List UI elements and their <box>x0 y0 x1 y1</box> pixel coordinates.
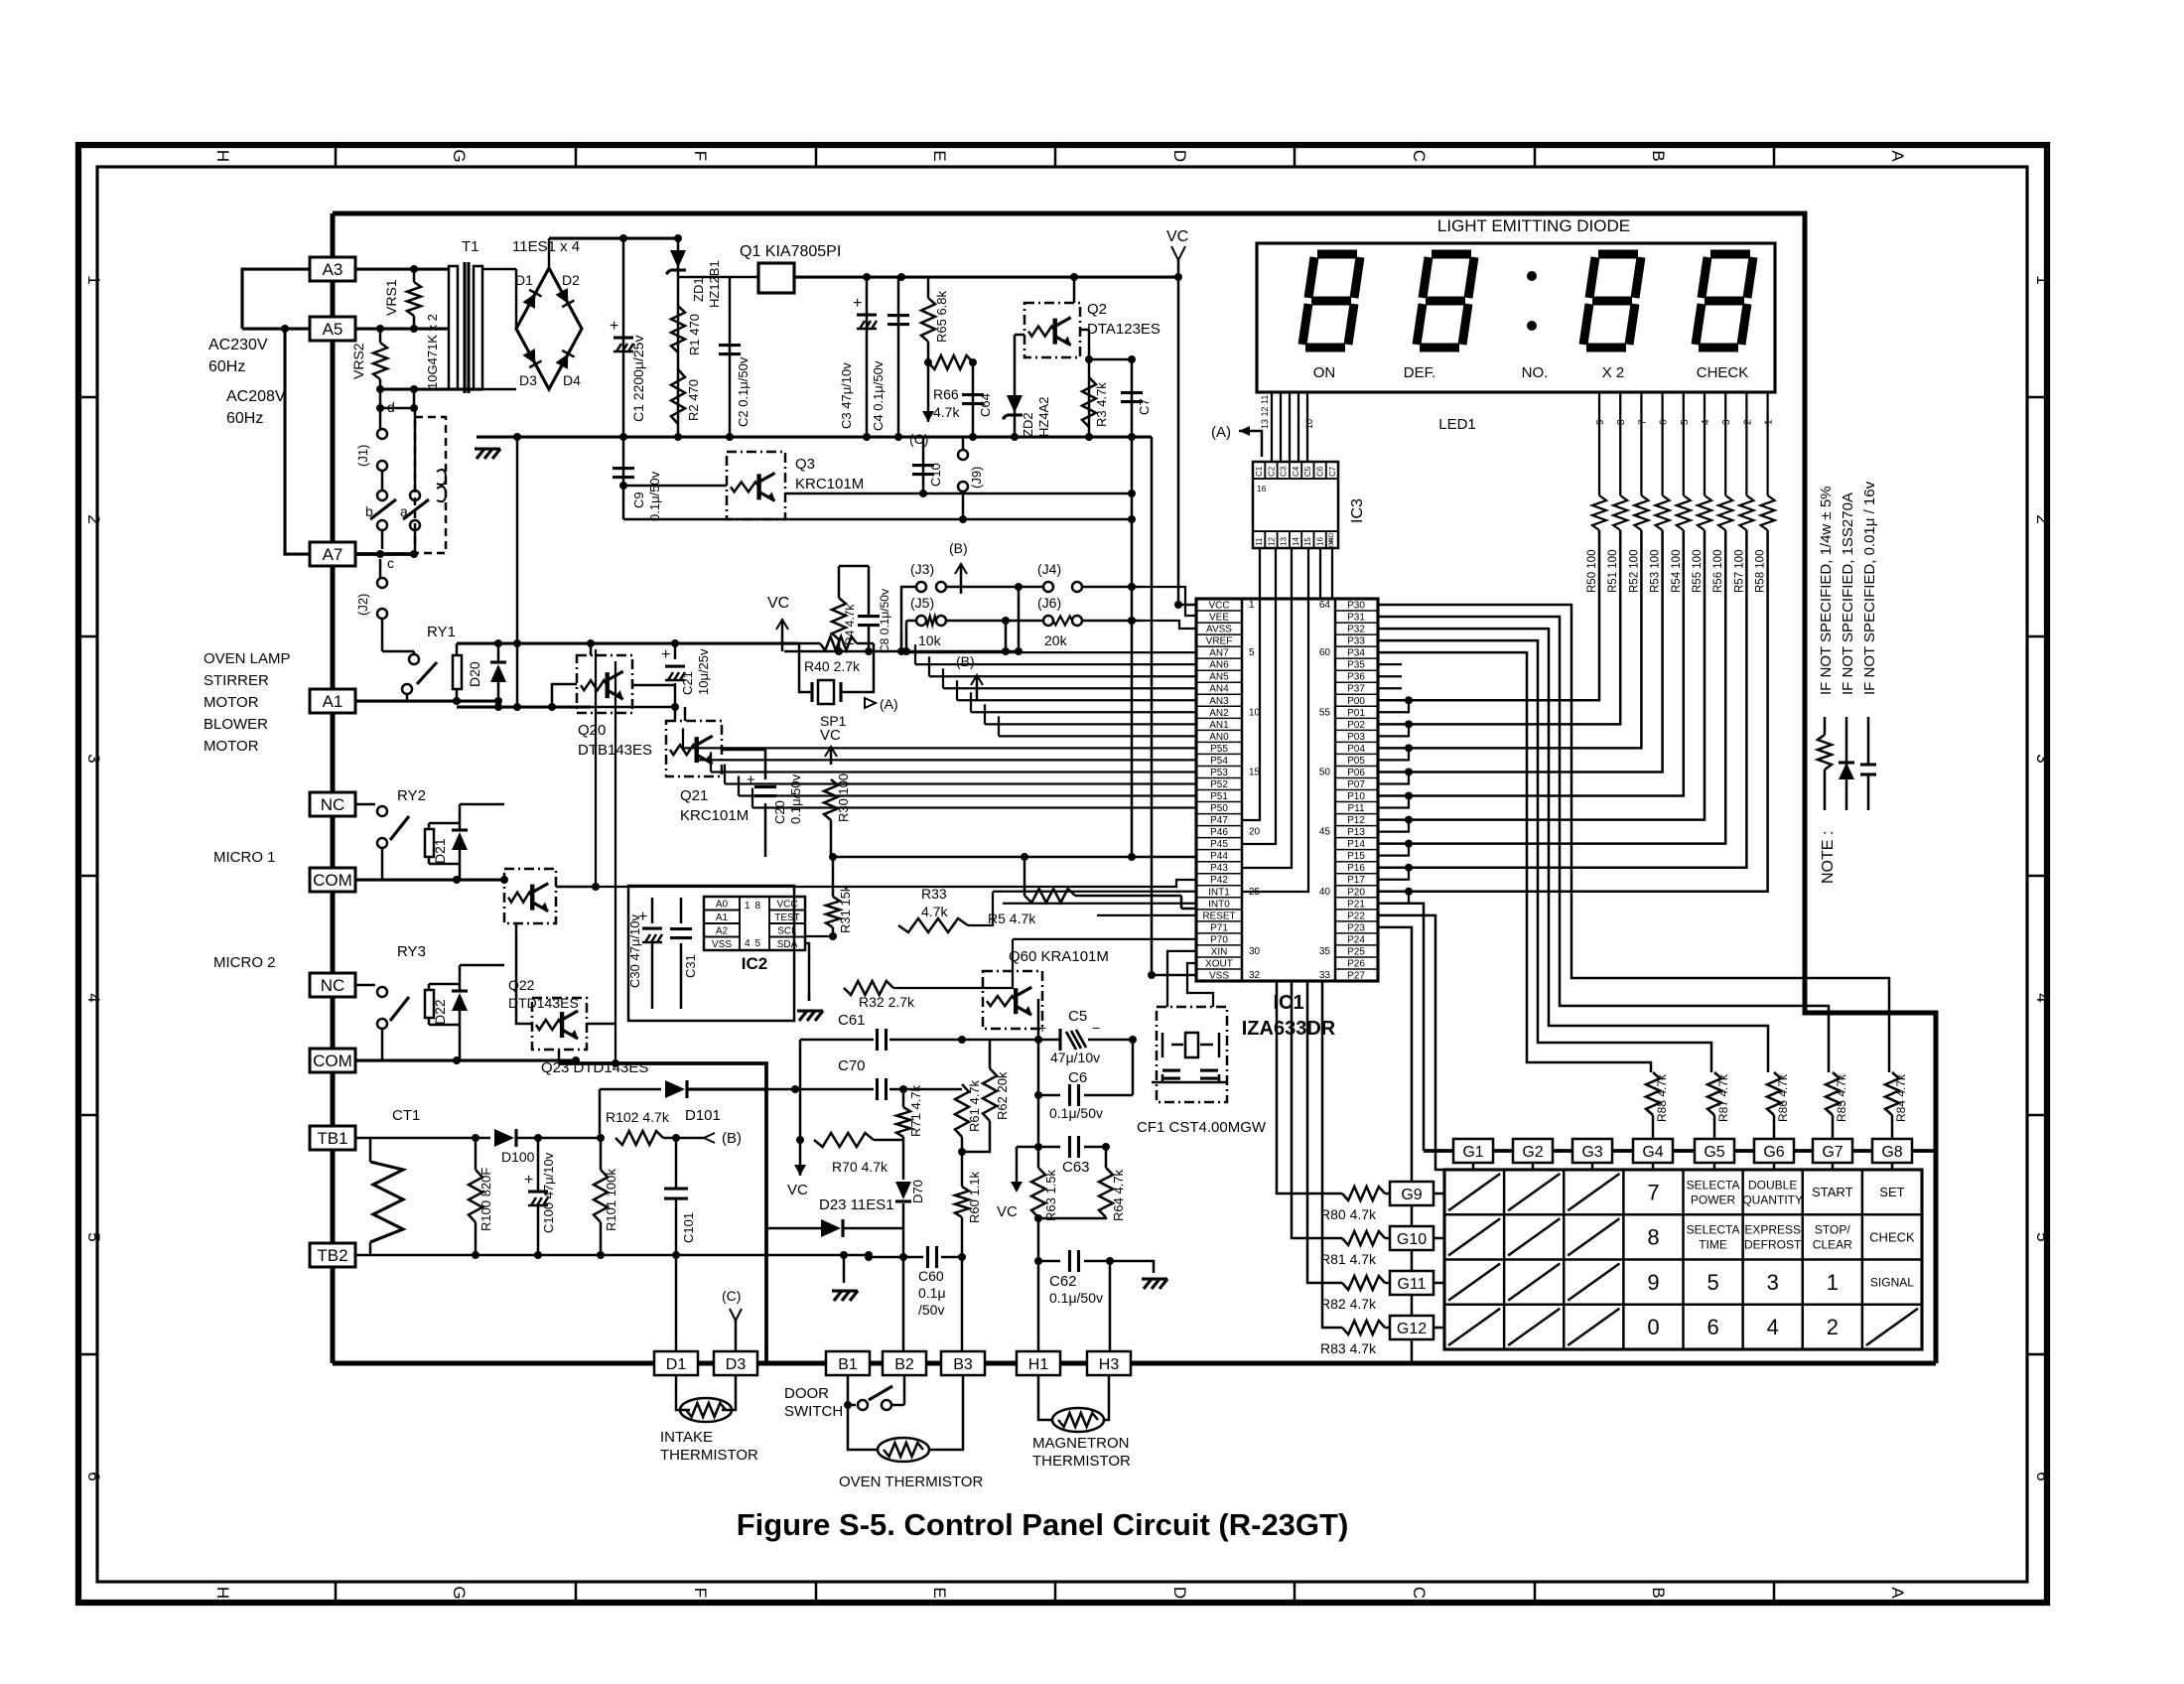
svg-text:AN3: AN3 <box>1209 696 1229 707</box>
svg-text:R100 820F: R100 820F <box>478 1168 493 1231</box>
svg-text:P04: P04 <box>1347 744 1365 755</box>
svg-text:D22: D22 <box>432 999 448 1025</box>
svg-text:+: + <box>661 646 670 663</box>
svg-text:R53 100: R53 100 <box>1650 550 1662 593</box>
svg-text:20: 20 <box>1249 827 1261 838</box>
svg-text:A5: A5 <box>323 320 343 339</box>
svg-text:P44: P44 <box>1210 851 1228 862</box>
svg-text:7: 7 <box>1637 419 1648 425</box>
svg-text:RY3: RY3 <box>397 943 426 960</box>
svg-text:IF NOT SPECIFIED, 1SS270A: IF NOT SPECIFIED, 1SS270A <box>1840 492 1856 695</box>
svg-text:A1: A1 <box>716 912 729 923</box>
svg-text:D: D <box>1170 1587 1189 1599</box>
svg-text:D4: D4 <box>563 372 581 388</box>
svg-text:A1: A1 <box>323 692 343 711</box>
svg-text:G12: G12 <box>1397 1321 1427 1337</box>
svg-text:C6: C6 <box>1316 466 1325 477</box>
svg-text:G: G <box>450 1586 469 1599</box>
svg-text:TIME: TIME <box>1699 1238 1727 1252</box>
svg-text:SELECTA: SELECTA <box>1687 1178 1740 1192</box>
svg-text:/50v: /50v <box>918 1302 944 1318</box>
svg-text:G2: G2 <box>1522 1144 1543 1161</box>
svg-text:B2: B2 <box>894 1356 914 1373</box>
svg-text:P34: P34 <box>1347 648 1365 659</box>
svg-text:COM: COM <box>313 1052 352 1070</box>
svg-text:MAGNETRON: MAGNETRON <box>1032 1435 1130 1452</box>
svg-text:D70: D70 <box>910 1180 925 1203</box>
svg-text:R87 4.7k: R87 4.7k <box>1716 1073 1730 1122</box>
svg-text:P17: P17 <box>1347 875 1365 886</box>
svg-text:Q21: Q21 <box>680 787 708 804</box>
svg-text:F: F <box>691 151 710 161</box>
svg-text:60Hz: 60Hz <box>226 410 263 427</box>
svg-text:G3: G3 <box>1581 1144 1602 1161</box>
svg-text:15: 15 <box>1303 537 1312 546</box>
svg-text:R57 100: R57 100 <box>1733 550 1745 593</box>
svg-text:B3: B3 <box>953 1356 973 1373</box>
svg-text:C30 47μ/10v: C30 47μ/10v <box>627 914 642 988</box>
svg-text:RESET: RESET <box>1202 911 1235 921</box>
svg-text:Q22: Q22 <box>508 977 535 993</box>
svg-text:R56 100: R56 100 <box>1712 550 1724 593</box>
svg-text:0.1μ/50v: 0.1μ/50v <box>1049 1105 1103 1121</box>
svg-text:LED1: LED1 <box>1438 416 1476 433</box>
svg-text:P14: P14 <box>1347 839 1365 850</box>
svg-text:THERMISTOR: THERMISTOR <box>660 1447 758 1464</box>
svg-text:+: + <box>853 295 862 312</box>
svg-text:P51: P51 <box>1210 791 1228 802</box>
svg-text:55: 55 <box>1319 707 1331 718</box>
svg-text:(J3): (J3) <box>910 561 934 577</box>
svg-text:SDA: SDA <box>777 939 798 950</box>
svg-text:4: 4 <box>2033 993 2052 1002</box>
svg-text:50: 50 <box>1319 767 1331 777</box>
svg-text:XOUT: XOUT <box>1205 958 1233 969</box>
svg-text:33: 33 <box>1319 970 1331 981</box>
svg-text:R80 4.7k: R80 4.7k <box>1320 1206 1377 1222</box>
svg-text:1: 1 <box>745 901 751 912</box>
svg-text:R65 6.8k: R65 6.8k <box>934 290 949 343</box>
svg-text:SWITCH: SWITCH <box>784 1403 843 1420</box>
svg-text:(J2): (J2) <box>355 594 370 616</box>
svg-text:G8: G8 <box>1881 1144 1902 1161</box>
svg-text:OVEN LAMP: OVEN LAMP <box>204 650 291 667</box>
svg-text:6: 6 <box>1706 1315 1718 1339</box>
svg-text:CHECK: CHECK <box>1697 364 1749 381</box>
svg-text:CLEAR: CLEAR <box>1813 1238 1852 1252</box>
svg-text:R30 100: R30 100 <box>836 773 851 822</box>
svg-text:+: + <box>610 318 618 335</box>
svg-text:+: + <box>1038 1020 1046 1036</box>
svg-text:5: 5 <box>1249 647 1255 658</box>
svg-text:9: 9 <box>1647 1270 1659 1295</box>
svg-text:(J6): (J6) <box>1037 595 1061 611</box>
svg-text:H1: H1 <box>1028 1356 1049 1373</box>
svg-text:VC: VC <box>1166 228 1188 245</box>
svg-text:TEST: TEST <box>774 912 800 923</box>
svg-text:4: 4 <box>1767 1315 1779 1339</box>
svg-text:2: 2 <box>84 514 103 523</box>
svg-text:11: 11 <box>1255 537 1264 546</box>
svg-text:AN2: AN2 <box>1209 708 1229 719</box>
svg-text:G10: G10 <box>1397 1231 1427 1248</box>
svg-text:B: B <box>1649 1587 1668 1598</box>
svg-text:P00: P00 <box>1347 696 1365 707</box>
svg-text:STIRRER: STIRRER <box>204 672 269 689</box>
svg-text:P05: P05 <box>1347 756 1365 767</box>
svg-text:35: 35 <box>1319 946 1331 957</box>
svg-text:(C): (C) <box>909 431 928 447</box>
svg-text:KRC101M: KRC101M <box>680 807 749 824</box>
svg-text:15: 15 <box>1249 767 1261 777</box>
svg-text:4: 4 <box>745 938 751 949</box>
svg-text:C3: C3 <box>1280 466 1289 477</box>
svg-text:(B): (B) <box>722 1130 742 1147</box>
svg-text:C100 47μ/10v: C100 47μ/10v <box>541 1152 556 1233</box>
svg-text:C6: C6 <box>1068 1069 1087 1086</box>
svg-text:6: 6 <box>1659 419 1670 425</box>
svg-text:G11: G11 <box>1397 1276 1426 1293</box>
svg-text:C: C <box>1410 150 1429 162</box>
svg-text:DEFROST: DEFROST <box>1744 1238 1802 1252</box>
svg-text:RY2: RY2 <box>397 787 426 804</box>
svg-text:AN4: AN4 <box>1209 684 1229 695</box>
svg-text:14: 14 <box>1292 537 1300 546</box>
svg-text:4.7k: 4.7k <box>933 404 960 420</box>
svg-text:P26: P26 <box>1347 958 1365 969</box>
svg-text:R83 4.7k: R83 4.7k <box>1320 1340 1377 1356</box>
svg-text:P70: P70 <box>1210 934 1228 945</box>
svg-text:Q60 KRA101M: Q60 KRA101M <box>1009 948 1109 965</box>
svg-text:NO.: NO. <box>1522 364 1549 381</box>
svg-text:B: B <box>1649 150 1668 161</box>
svg-text:0.1μ/50v: 0.1μ/50v <box>647 471 662 521</box>
svg-text:P24: P24 <box>1347 934 1365 945</box>
svg-text:2: 2 <box>2033 514 2052 523</box>
svg-text:MOTOR: MOTOR <box>204 694 259 711</box>
svg-text:TB2: TB2 <box>317 1246 347 1265</box>
svg-text:C5: C5 <box>1303 466 1312 477</box>
svg-text:10μ/25v: 10μ/25v <box>696 648 711 695</box>
svg-text:R52 100: R52 100 <box>1628 550 1640 593</box>
svg-text:P33: P33 <box>1347 636 1365 647</box>
svg-text:1: 1 <box>84 275 103 284</box>
svg-text:R33: R33 <box>921 886 947 902</box>
svg-text:C: C <box>1410 1587 1429 1599</box>
svg-text:G7: G7 <box>1822 1144 1843 1161</box>
svg-text:C63: C63 <box>1062 1159 1090 1176</box>
svg-text:G4: G4 <box>1642 1144 1663 1161</box>
svg-text:XIN: XIN <box>1211 946 1228 957</box>
svg-text:P46: P46 <box>1210 827 1228 838</box>
svg-text:MICRO 2: MICRO 2 <box>213 954 276 971</box>
svg-text:64: 64 <box>1319 600 1331 611</box>
svg-text:5: 5 <box>1680 419 1691 425</box>
svg-text:−: − <box>1092 1020 1100 1036</box>
svg-text:DTA123ES: DTA123ES <box>1087 321 1160 338</box>
svg-text:4: 4 <box>84 993 103 1002</box>
svg-text:OVEN THERMISTOR: OVEN THERMISTOR <box>839 1473 983 1490</box>
svg-text:P36: P36 <box>1347 672 1365 683</box>
svg-text:R54 100: R54 100 <box>1671 550 1683 593</box>
svg-text:SIGNAL: SIGNAL <box>1870 1275 1914 1289</box>
svg-text:P42: P42 <box>1210 875 1228 886</box>
svg-text:7: 7 <box>1647 1180 1659 1204</box>
svg-text:5: 5 <box>2033 1232 2052 1241</box>
svg-text:P37: P37 <box>1347 684 1365 695</box>
svg-text:5: 5 <box>84 1232 103 1241</box>
svg-text:INTAKE: INTAKE <box>660 1429 713 1446</box>
svg-text:4: 4 <box>1701 419 1711 425</box>
svg-text:8: 8 <box>1616 419 1627 425</box>
svg-text:R82 4.7k: R82 4.7k <box>1320 1296 1377 1312</box>
svg-text:D21: D21 <box>432 838 448 864</box>
svg-text:R58 100: R58 100 <box>1755 550 1767 593</box>
svg-text:R86 4.7k: R86 4.7k <box>1776 1073 1790 1122</box>
svg-text:F: F <box>691 1588 710 1598</box>
svg-text:45: 45 <box>1319 827 1331 838</box>
svg-text:10: 10 <box>1249 707 1261 718</box>
svg-text:ON: ON <box>1313 364 1336 381</box>
svg-text:12: 12 <box>1267 537 1276 546</box>
svg-text:P30: P30 <box>1347 601 1365 612</box>
svg-text:ZD1: ZD1 <box>691 277 706 302</box>
svg-text:D3: D3 <box>726 1356 747 1373</box>
svg-text:A0: A0 <box>716 900 729 911</box>
svg-text:VRS2: VRS2 <box>350 343 366 379</box>
svg-text:10: 10 <box>1304 419 1314 429</box>
svg-text:R88 4.7k: R88 4.7k <box>1655 1073 1669 1122</box>
svg-text:G6: G6 <box>1763 1144 1784 1161</box>
svg-text:G: G <box>450 149 469 162</box>
svg-text:25: 25 <box>1249 887 1261 898</box>
svg-text:C2 0.1μ/50v: C2 0.1μ/50v <box>736 356 751 427</box>
svg-text:P54: P54 <box>1210 756 1228 767</box>
svg-text:R3 4.7k: R3 4.7k <box>1094 382 1109 427</box>
svg-text:32: 32 <box>1249 970 1261 981</box>
svg-text:c: c <box>387 555 394 571</box>
svg-text:SP1: SP1 <box>820 713 847 729</box>
svg-text:D23 11ES1: D23 11ES1 <box>819 1196 894 1213</box>
svg-text:R66: R66 <box>933 386 959 402</box>
svg-text:B1: B1 <box>838 1356 858 1373</box>
svg-text:P06: P06 <box>1347 768 1365 778</box>
svg-text:3: 3 <box>2033 754 2052 763</box>
svg-text:VC: VC <box>997 1203 1018 1220</box>
svg-text:DOUBLE: DOUBLE <box>1748 1178 1797 1192</box>
svg-text:10k: 10k <box>918 632 942 648</box>
svg-text:E: E <box>930 1587 949 1598</box>
svg-text:R84 4.7k: R84 4.7k <box>1894 1073 1908 1122</box>
svg-text:P12: P12 <box>1347 815 1365 826</box>
svg-text:INT1: INT1 <box>1208 887 1230 898</box>
svg-text:6: 6 <box>84 1472 103 1480</box>
svg-text:(C): (C) <box>722 1288 741 1304</box>
svg-text:CHECK: CHECK <box>1869 1229 1915 1244</box>
svg-text:P47: P47 <box>1210 815 1228 826</box>
svg-text:E: E <box>930 150 949 161</box>
svg-text:VCC: VCC <box>1208 601 1229 612</box>
svg-text:DEF.: DEF. <box>1404 364 1436 381</box>
svg-text:P50: P50 <box>1210 803 1228 814</box>
svg-text:H: H <box>213 150 232 162</box>
svg-text:13: 13 <box>1280 537 1289 546</box>
svg-text:EXPRESS: EXPRESS <box>1744 1223 1801 1237</box>
svg-text:P35: P35 <box>1347 660 1365 671</box>
svg-text:60Hz: 60Hz <box>208 358 245 375</box>
svg-text:IC2: IC2 <box>742 954 767 973</box>
svg-text:R101 100k: R101 100k <box>604 1169 618 1231</box>
svg-text:A2: A2 <box>716 926 729 937</box>
svg-text:8: 8 <box>754 901 760 912</box>
svg-text:0.1μ/50v: 0.1μ/50v <box>788 773 803 824</box>
svg-text:AN5: AN5 <box>1209 672 1229 683</box>
svg-text:6: 6 <box>2033 1472 2052 1480</box>
svg-text:P20: P20 <box>1347 887 1365 898</box>
svg-text:(B): (B) <box>949 540 968 556</box>
svg-text:3: 3 <box>1767 1270 1779 1295</box>
svg-text:R40 2.7k: R40 2.7k <box>804 658 861 674</box>
svg-text:P07: P07 <box>1347 779 1365 790</box>
svg-text:AN0: AN0 <box>1209 732 1229 743</box>
svg-text:TB1: TB1 <box>317 1129 347 1148</box>
svg-text:R50 100: R50 100 <box>1586 550 1598 593</box>
svg-text:5: 5 <box>754 938 760 949</box>
svg-text:AVSS: AVSS <box>1206 625 1232 635</box>
svg-text:47μ/10v: 47μ/10v <box>1050 1050 1100 1065</box>
svg-text:(J9): (J9) <box>969 467 984 489</box>
svg-text:+: + <box>747 772 755 788</box>
svg-text:C64: C64 <box>978 393 993 417</box>
svg-text:A: A <box>1888 150 1907 162</box>
svg-text:START: START <box>1812 1185 1852 1199</box>
svg-text:LIGHT EMITTING DIODE: LIGHT EMITTING DIODE <box>1437 216 1630 235</box>
svg-text:C3 47μ/10v: C3 47μ/10v <box>839 362 854 429</box>
svg-text:KRC101M: KRC101M <box>795 476 864 492</box>
svg-text:Q2: Q2 <box>1087 301 1107 318</box>
svg-text:P13: P13 <box>1347 827 1365 838</box>
svg-text:P25: P25 <box>1347 946 1365 957</box>
svg-text:R63 1.5k: R63 1.5k <box>1043 1169 1058 1221</box>
svg-text:D3: D3 <box>519 372 537 388</box>
svg-text:13 12 11: 13 12 11 <box>1260 395 1270 429</box>
svg-text:P71: P71 <box>1210 922 1228 933</box>
svg-text:DOOR: DOOR <box>784 1385 829 1402</box>
svg-text:C4: C4 <box>1292 466 1300 477</box>
svg-text:QUANTITY: QUANTITY <box>1742 1193 1803 1206</box>
svg-text:CT1: CT1 <box>392 1107 420 1124</box>
svg-text:Q20: Q20 <box>578 722 606 739</box>
svg-text:C21: C21 <box>680 671 695 695</box>
svg-text:A3: A3 <box>323 260 343 279</box>
svg-text:(B): (B) <box>956 653 975 669</box>
svg-text:INT0: INT0 <box>1208 899 1230 910</box>
svg-text:R61 4.7k: R61 4.7k <box>967 1079 982 1132</box>
svg-text:Q3: Q3 <box>795 456 815 473</box>
svg-text:COM: COM <box>313 871 352 890</box>
svg-text:R64 4.7k: R64 4.7k <box>1111 1169 1126 1221</box>
svg-text:R51 100: R51 100 <box>1607 550 1619 593</box>
svg-text:IC3: IC3 <box>1349 498 1366 523</box>
svg-text:+: + <box>524 1172 533 1189</box>
svg-text:X 2: X 2 <box>1602 364 1625 381</box>
svg-text:DTD143ES: DTD143ES <box>508 995 579 1011</box>
svg-text:C60: C60 <box>918 1268 944 1284</box>
svg-text:A: A <box>1888 1587 1907 1599</box>
svg-text:(A): (A) <box>880 696 898 712</box>
svg-text:T1: T1 <box>462 238 479 255</box>
svg-text:NC: NC <box>321 795 345 814</box>
svg-text:P27: P27 <box>1347 970 1365 981</box>
svg-text:P15: P15 <box>1347 851 1365 862</box>
svg-text:AN1: AN1 <box>1209 720 1229 731</box>
svg-text:AN7: AN7 <box>1209 648 1229 659</box>
svg-text:VCC: VCC <box>776 900 797 911</box>
svg-text:VC: VC <box>787 1182 808 1198</box>
svg-text:1: 1 <box>1827 1270 1839 1295</box>
svg-text:P03: P03 <box>1347 732 1365 743</box>
svg-text:VREF: VREF <box>1206 636 1233 647</box>
svg-text:C20: C20 <box>772 800 787 824</box>
svg-text:P21: P21 <box>1347 899 1365 910</box>
svg-text:R2 470: R2 470 <box>686 379 701 421</box>
svg-text:60: 60 <box>1319 647 1331 658</box>
svg-text:C2: C2 <box>1267 466 1276 477</box>
svg-text:R60 1.1k: R60 1.1k <box>967 1171 982 1223</box>
svg-text:4.7k: 4.7k <box>921 904 948 919</box>
svg-text:C31: C31 <box>683 954 698 978</box>
svg-text:C62: C62 <box>1049 1273 1077 1290</box>
svg-text:MICRO 1: MICRO 1 <box>213 849 276 866</box>
svg-text:THERMISTOR: THERMISTOR <box>1032 1453 1131 1470</box>
svg-text:2: 2 <box>1827 1315 1839 1339</box>
svg-text:POWER: POWER <box>1691 1193 1736 1206</box>
svg-text:C61: C61 <box>838 1012 866 1029</box>
svg-text:D: D <box>1170 150 1189 162</box>
svg-text:0: 0 <box>1647 1315 1659 1339</box>
svg-text:P43: P43 <box>1210 863 1228 874</box>
svg-text:C10: C10 <box>928 463 943 487</box>
svg-text:(J1): (J1) <box>355 445 370 467</box>
svg-text:VC: VC <box>820 727 841 744</box>
svg-text:P53: P53 <box>1210 768 1228 778</box>
svg-text:C4 0.1μ/50v: C4 0.1μ/50v <box>871 360 886 431</box>
svg-text:C8 0.1μ/50v: C8 0.1μ/50v <box>878 589 891 653</box>
svg-text:9: 9 <box>1595 419 1606 425</box>
svg-text:VSS: VSS <box>712 939 732 950</box>
svg-text:Figure S-5. Control Panel Circ: Figure S-5. Control Panel Circuit (R-23G… <box>737 1507 1349 1542</box>
svg-text:R5 4.7k: R5 4.7k <box>988 911 1036 926</box>
svg-text:BLOWER: BLOWER <box>204 716 268 733</box>
svg-text:NOTE :: NOTE : <box>1820 831 1837 884</box>
svg-text:AC230V: AC230V <box>208 337 268 353</box>
svg-text:1: 1 <box>2033 275 2052 284</box>
svg-text:C7: C7 <box>1137 398 1152 415</box>
svg-text:R1 470: R1 470 <box>687 314 702 355</box>
svg-text:G5: G5 <box>1704 1144 1724 1161</box>
svg-text:3: 3 <box>84 754 103 763</box>
svg-text:D1: D1 <box>515 272 533 288</box>
svg-text:16: 16 <box>1257 484 1267 493</box>
svg-text:R70 4.7k: R70 4.7k <box>832 1159 888 1175</box>
svg-text:b: b <box>365 503 373 519</box>
svg-text:SET: SET <box>1879 1185 1904 1199</box>
svg-text:D2: D2 <box>562 272 580 288</box>
svg-text:R102 4.7k: R102 4.7k <box>606 1109 670 1125</box>
svg-text:P22: P22 <box>1347 911 1365 921</box>
svg-text:8: 8 <box>1647 1225 1659 1250</box>
svg-text:5: 5 <box>1706 1270 1718 1295</box>
